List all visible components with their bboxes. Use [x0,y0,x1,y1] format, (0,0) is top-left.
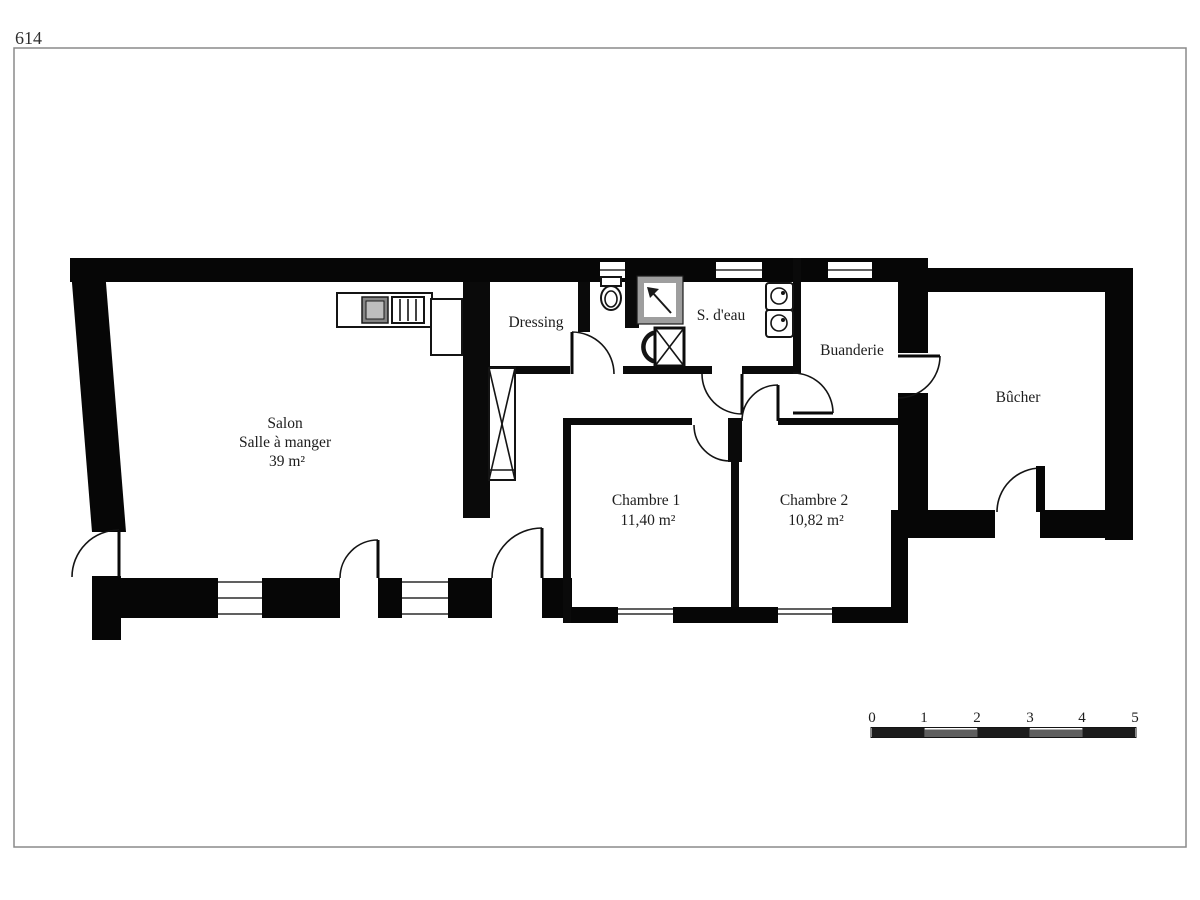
room-label-woodshed: Bûcher [996,389,1042,406]
window-bedroom1 [618,607,673,623]
wardrobe-x-icon [489,368,515,480]
dryer-icon [766,310,793,337]
window-bedroom2 [778,607,832,623]
toilet-icon [601,277,621,310]
shower-icon [637,276,683,324]
scale-tick-5: 5 [1131,710,1139,726]
floor-plan-sheet: 614 [0,0,1200,900]
stove-icon [392,297,424,323]
fridge-counter [431,299,462,355]
duct-x-icon [655,328,684,366]
window-salon-1 [218,578,262,618]
kitchen-sink-icon [362,297,388,323]
window-wc [600,262,625,278]
page-number: 614 [15,28,42,48]
scale-tick-3: 3 [1026,710,1034,726]
room-label-laundry: Buanderie [820,342,884,359]
window-laundry [828,262,872,278]
washer-icon [766,283,793,310]
scale-tick-2: 2 [973,710,981,726]
room-label-shower-room: S. d'eau [697,307,746,324]
scale-tick-4: 4 [1078,710,1086,726]
room-label-dressing: Dressing [508,314,563,331]
window-shower-room [716,262,762,278]
scale-tick-1: 1 [920,710,928,726]
scale-bar-segments [871,728,1136,738]
page-background [0,0,1200,900]
window-salon-2 [402,578,448,618]
scale-tick-0: 0 [868,710,876,726]
